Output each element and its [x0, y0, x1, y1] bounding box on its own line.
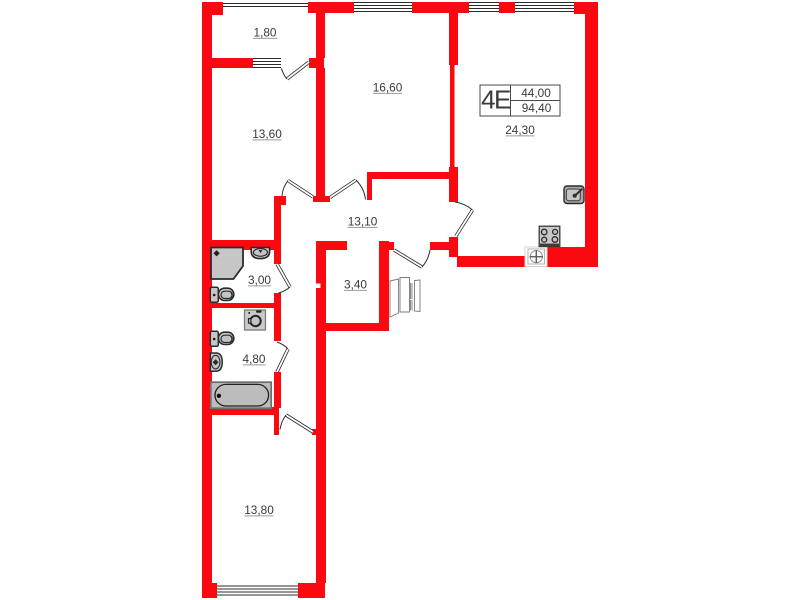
- svg-text:3,40: 3,40: [344, 278, 367, 292]
- svg-text:94,40: 94,40: [522, 101, 552, 115]
- svg-text:3,00: 3,00: [248, 273, 271, 287]
- svg-text:13,10: 13,10: [348, 215, 378, 229]
- svg-text:4,80: 4,80: [243, 352, 266, 366]
- svg-text:16,60: 16,60: [373, 81, 403, 95]
- svg-text:4E: 4E: [481, 85, 511, 115]
- svg-text:1,80: 1,80: [254, 26, 277, 40]
- svg-text:13,80: 13,80: [244, 503, 274, 517]
- svg-text:13,60: 13,60: [252, 127, 282, 141]
- svg-text:44,00: 44,00: [521, 86, 551, 100]
- svg-text:24,30: 24,30: [505, 123, 535, 137]
